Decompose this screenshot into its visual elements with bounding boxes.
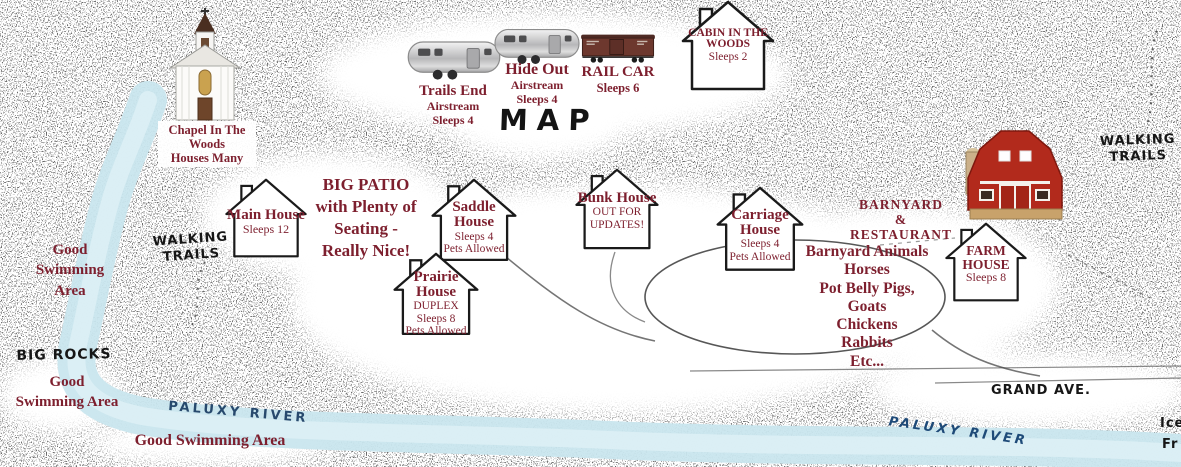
barnyard-restaurant-line: & [845,212,957,227]
barn-illustration [962,122,1068,226]
saddle-house-name: Saddle House [433,200,516,231]
chapel-caption: Chapel In The Woods Houses Many [158,121,256,167]
cabin-name: CABIN IN THE WOODS [683,28,773,51]
barnyard-animals-line: Barnyard Animals [793,243,941,261]
main-house-detail: Sleeps 12 [226,223,305,236]
bunk-house-name: Bunk House [577,191,658,206]
prairie-house-detail: Pets Allowed [395,325,478,337]
chapel-illustration [162,8,248,122]
carriage-house-detail: Pets Allowed [718,251,803,263]
swimming-area-lower-label: Good Swimming Area [14,372,120,413]
chapel-note: Houses Many [161,151,253,165]
big-patio-line: Really Nice! [310,240,422,262]
big-patio-line: BIG PATIO [310,174,422,196]
edge-partial-text: Ice [1160,416,1181,432]
bunk-house-detail: UPDATES! [577,219,658,231]
barnyard-animals-line: Goats [793,298,941,316]
farm-house-detail: Sleeps 8 [946,271,1025,284]
big-rocks-label: BIG ROCKS [14,346,114,365]
swimming-area-bottom-label: Good Swimming Area [120,432,300,450]
barnyard-animals-line: Etc... [793,353,941,371]
bunk-house-detail: OUT FOR [577,206,658,218]
edge-partial-text: Fr [1162,437,1181,453]
barnyard-restaurant-label: BARNYARD & RESTAURANT [845,197,957,242]
property-map: CABIN IN THE WOODS Sleeps 2 Main House S… [0,0,1181,467]
prairie-house-detail: DUPLEX [395,300,478,312]
main-house-marker: Main House Sleeps 12 [222,178,310,259]
walking-trails-right-label: WALKING TRAILS [1095,132,1180,167]
cabin-detail: Sleeps 2 [683,51,773,63]
prairie-house-name: Prairie House [395,270,478,301]
barnyard-animals-line: Pot Belly Pigs, [793,280,941,298]
barnyard-animals-line: Rabbits [793,334,941,352]
map-title: MAP [498,103,599,137]
saddle-house-detail: Sleeps 4 [433,231,516,243]
walking-trails-left-label: WALKING TRAILS [149,229,233,267]
prairie-house-marker: Prairie House DUPLEX Sleeps 8 Pets Allow… [390,252,482,337]
barnyard-animals-line: Chickens [793,316,941,334]
main-house-name: Main House [226,208,305,223]
big-patio-line: with Plenty of [310,196,422,218]
carriage-house-name: Carriage House [718,208,803,239]
rail-car-name: RAIL CAR [568,65,668,81]
grand-ave-label: GRAND AVE. [986,383,1096,399]
barnyard-restaurant-line: BARNYARD [845,197,957,212]
trails-end-sleeps: Sleeps 4 [403,114,503,128]
barnyard-animals-note: Barnyard Animals Horses Pot Belly Pigs, … [793,243,941,371]
barnyard-restaurant-line: RESTAURANT [845,227,957,242]
big-patio-note: BIG PATIO with Plenty of Seating - Reall… [310,174,422,262]
farm-house-name: FARM HOUSE [946,244,1025,272]
bunk-house-marker: Bunk House OUT FOR UPDATES! [572,168,662,251]
barnyard-animals-line: Horses [793,261,941,279]
carriage-house-detail: Sleeps 4 [718,238,803,250]
prairie-house-detail: Sleeps 8 [395,313,478,325]
hide-out-airstream-illustration [492,26,582,66]
big-patio-line: Seating - [310,218,422,240]
cabin-in-the-woods-marker: CABIN IN THE WOODS Sleeps 2 [678,0,778,92]
rail-car-caption: RAIL CAR Sleeps 6 [568,65,668,95]
saddle-house-marker: Saddle House Sleeps 4 Pets Allowed [428,178,520,263]
swimming-area-upper-label: Good Swimming Area [22,240,118,301]
chapel-name: Chapel In The Woods [161,123,253,151]
rail-car-sleeps: Sleeps 6 [568,81,668,95]
rail-car-illustration [577,33,659,65]
